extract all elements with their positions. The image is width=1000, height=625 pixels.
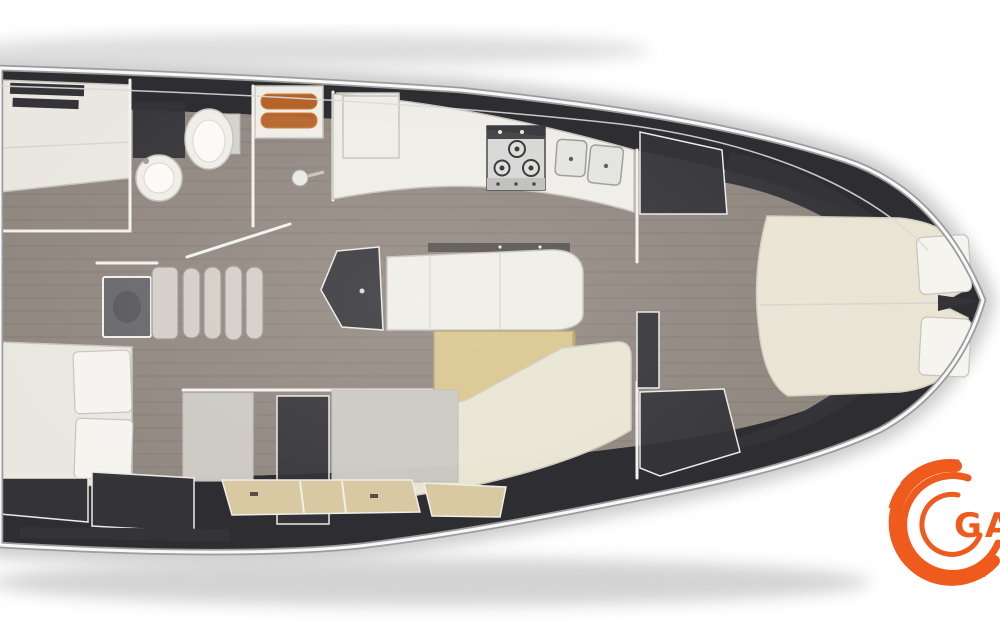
tan-lower-cabinet [222,480,420,515]
brand-logo: GAC [890,460,1000,579]
yacht-floorplan-stage: GAC [0,0,1000,625]
tan-lower-cabinet [424,483,506,517]
cabinet-handle [250,492,258,496]
stern-locker [0,478,88,522]
hull-top-shade [0,34,650,66]
cabinet-handle [370,494,378,498]
hull-bottom-shadow [0,558,870,606]
stern-locker [92,472,194,532]
logo-text: GAC [954,506,1000,546]
floorplan-svg: GAC [0,0,1000,625]
